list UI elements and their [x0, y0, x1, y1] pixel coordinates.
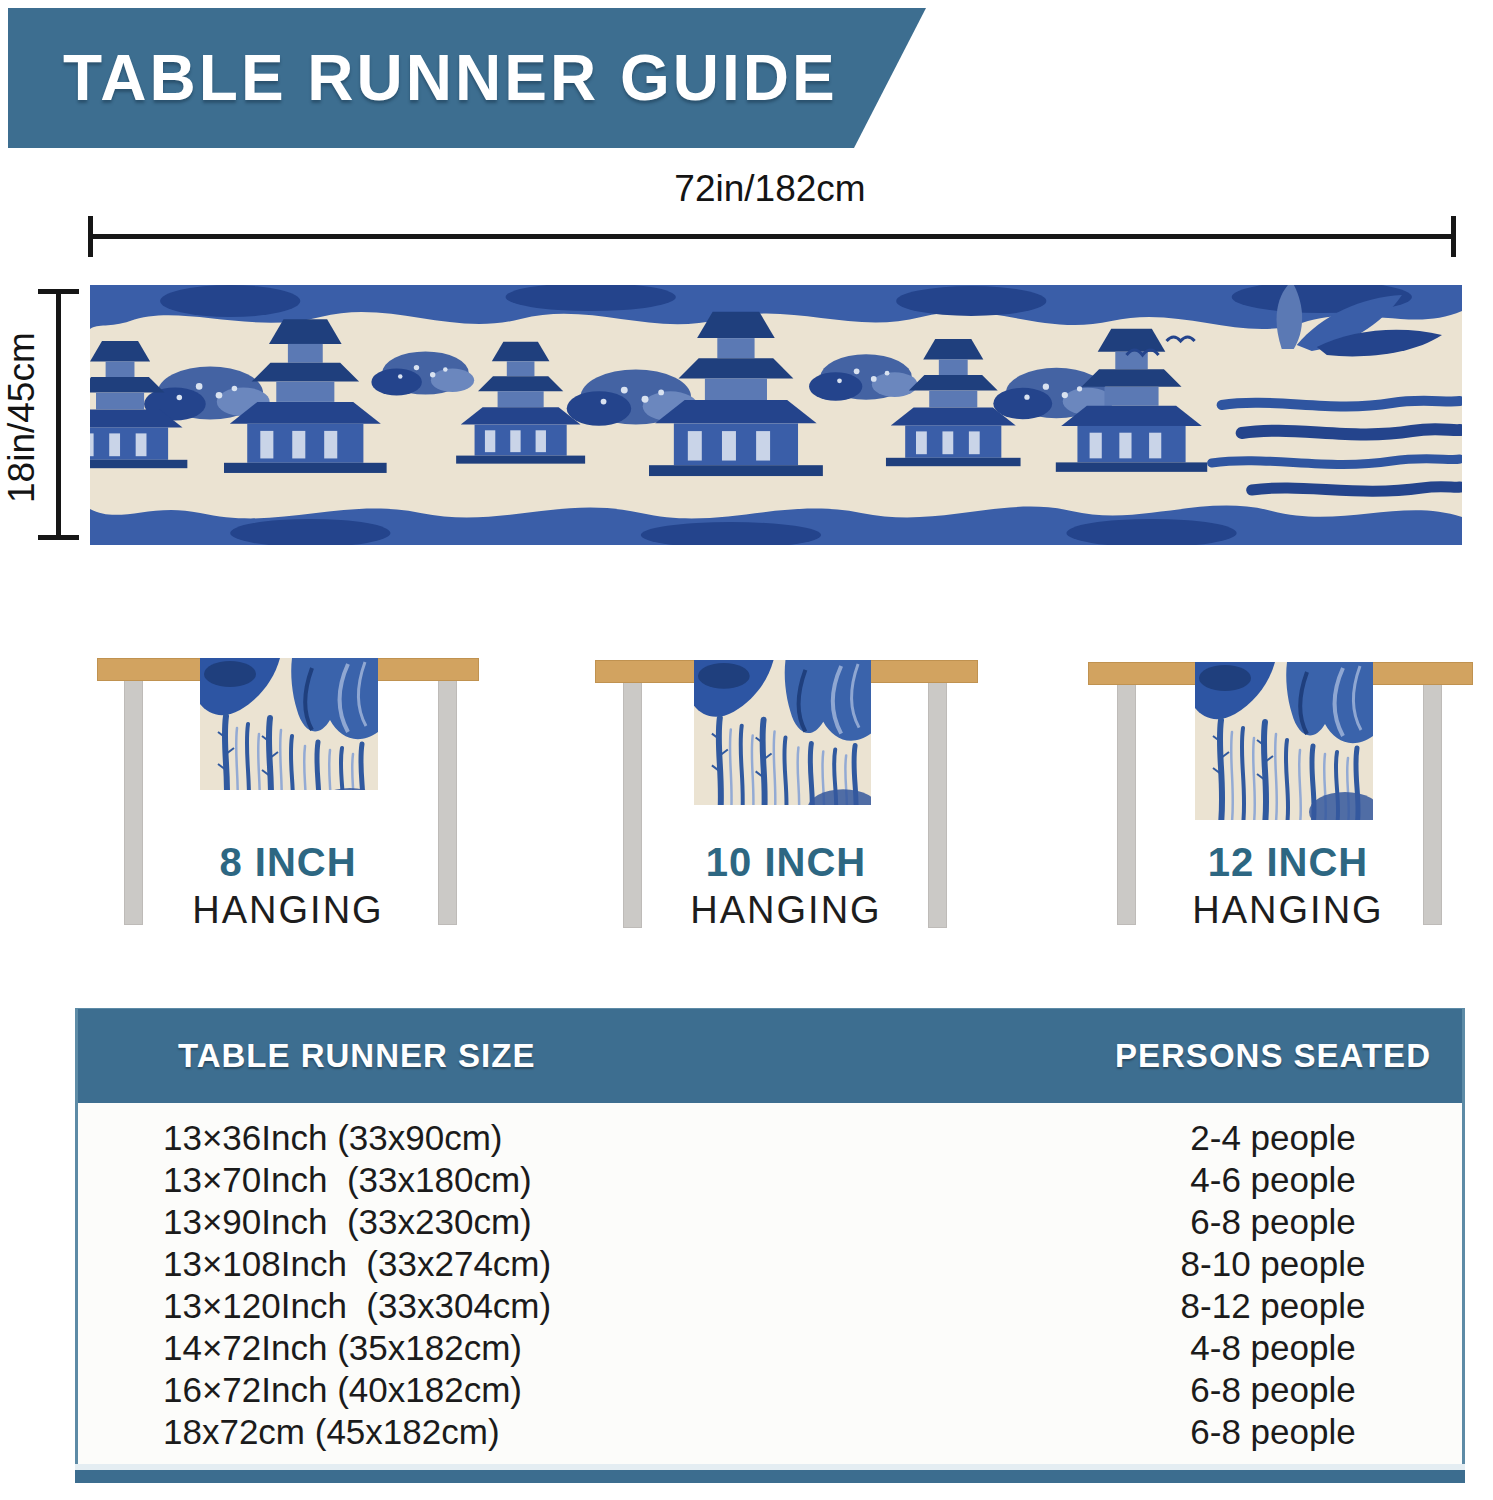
hanging-sub-label: HANGING	[88, 889, 488, 932]
table-row: 13×120Inch (33x304cm)8-12 people	[78, 1285, 1462, 1327]
page-title-banner: TABLE RUNNER GUIDE	[8, 8, 926, 148]
size-cell: 13×70Inch (33x180cm)	[163, 1159, 532, 1201]
hanging-label: 8 INCH HANGING	[88, 840, 488, 932]
size-cell: 18x72cm (45x182cm)	[163, 1411, 500, 1453]
page-title: TABLE RUNNER GUIDE	[8, 8, 926, 148]
hanging-size-label: 12 INCH	[1088, 840, 1488, 885]
column-header-size: TABLE RUNNER SIZE	[178, 1009, 535, 1103]
height-dimension-label: 18in/45cm	[1, 333, 43, 503]
size-cell: 13×36Inch (33x90cm)	[163, 1117, 503, 1159]
hanging-label: 10 INCH HANGING	[586, 840, 986, 932]
size-cell: 16×72Inch (40x182cm)	[163, 1369, 522, 1411]
size-table-body: 13×36Inch (33x90cm)2-4 people13×70Inch (…	[78, 1117, 1462, 1453]
size-cell: 13×90Inch (33x230cm)	[163, 1201, 532, 1243]
table-row: 13×70Inch (33x180cm)4-6 people	[78, 1159, 1462, 1201]
persons-cell: 6-8 people	[1108, 1369, 1438, 1411]
table-row: 18x72cm (45x182cm)6-8 people	[78, 1411, 1462, 1453]
table-row: 13×90Inch (33x230cm)6-8 people	[78, 1201, 1462, 1243]
hanging-size-label: 10 INCH	[586, 840, 986, 885]
hanging-runner-image	[694, 660, 871, 805]
hanging-runner-image	[1195, 662, 1373, 820]
persons-cell: 4-6 people	[1108, 1159, 1438, 1201]
persons-cell: 6-8 people	[1108, 1411, 1438, 1453]
column-header-persons: PERSONS SEATED	[1108, 1009, 1438, 1103]
size-cell: 13×108Inch (33x274cm)	[163, 1243, 551, 1285]
persons-cell: 4-8 people	[1108, 1327, 1438, 1369]
size-cell: 13×120Inch (33x304cm)	[163, 1285, 551, 1327]
height-dimension-line	[56, 289, 61, 540]
hanging-sub-label: HANGING	[1088, 889, 1488, 932]
hanging-runner-image	[200, 658, 378, 790]
hanging-label: 12 INCH HANGING	[1088, 840, 1488, 932]
persons-cell: 8-10 people	[1108, 1243, 1438, 1285]
persons-cell: 6-8 people	[1108, 1201, 1438, 1243]
table-row: 16×72Inch (40x182cm)6-8 people	[78, 1369, 1462, 1411]
persons-cell: 2-4 people	[1108, 1117, 1438, 1159]
size-cell: 14×72Inch (35x182cm)	[163, 1327, 522, 1369]
width-dimension-line	[88, 234, 1456, 239]
runner-preview-image	[90, 285, 1462, 545]
table-row: 13×108Inch (33x274cm)8-10 people	[78, 1243, 1462, 1285]
infographic-page: TABLE RUNNER GUIDE 72in/182cm 18in/45cm	[0, 0, 1493, 1500]
table-bottom-bar	[75, 1470, 1465, 1483]
width-dimension-label: 72in/182cm	[560, 168, 980, 210]
size-table: TABLE RUNNER SIZE PERSONS SEATED 13×36In…	[75, 1008, 1465, 1483]
table-row: 14×72Inch (35x182cm)4-8 people	[78, 1327, 1462, 1369]
table-row: 13×36Inch (33x90cm)2-4 people	[78, 1117, 1462, 1159]
hanging-size-label: 8 INCH	[88, 840, 488, 885]
persons-cell: 8-12 people	[1108, 1285, 1438, 1327]
hanging-sub-label: HANGING	[586, 889, 986, 932]
size-table-header: TABLE RUNNER SIZE PERSONS SEATED	[78, 1009, 1462, 1103]
